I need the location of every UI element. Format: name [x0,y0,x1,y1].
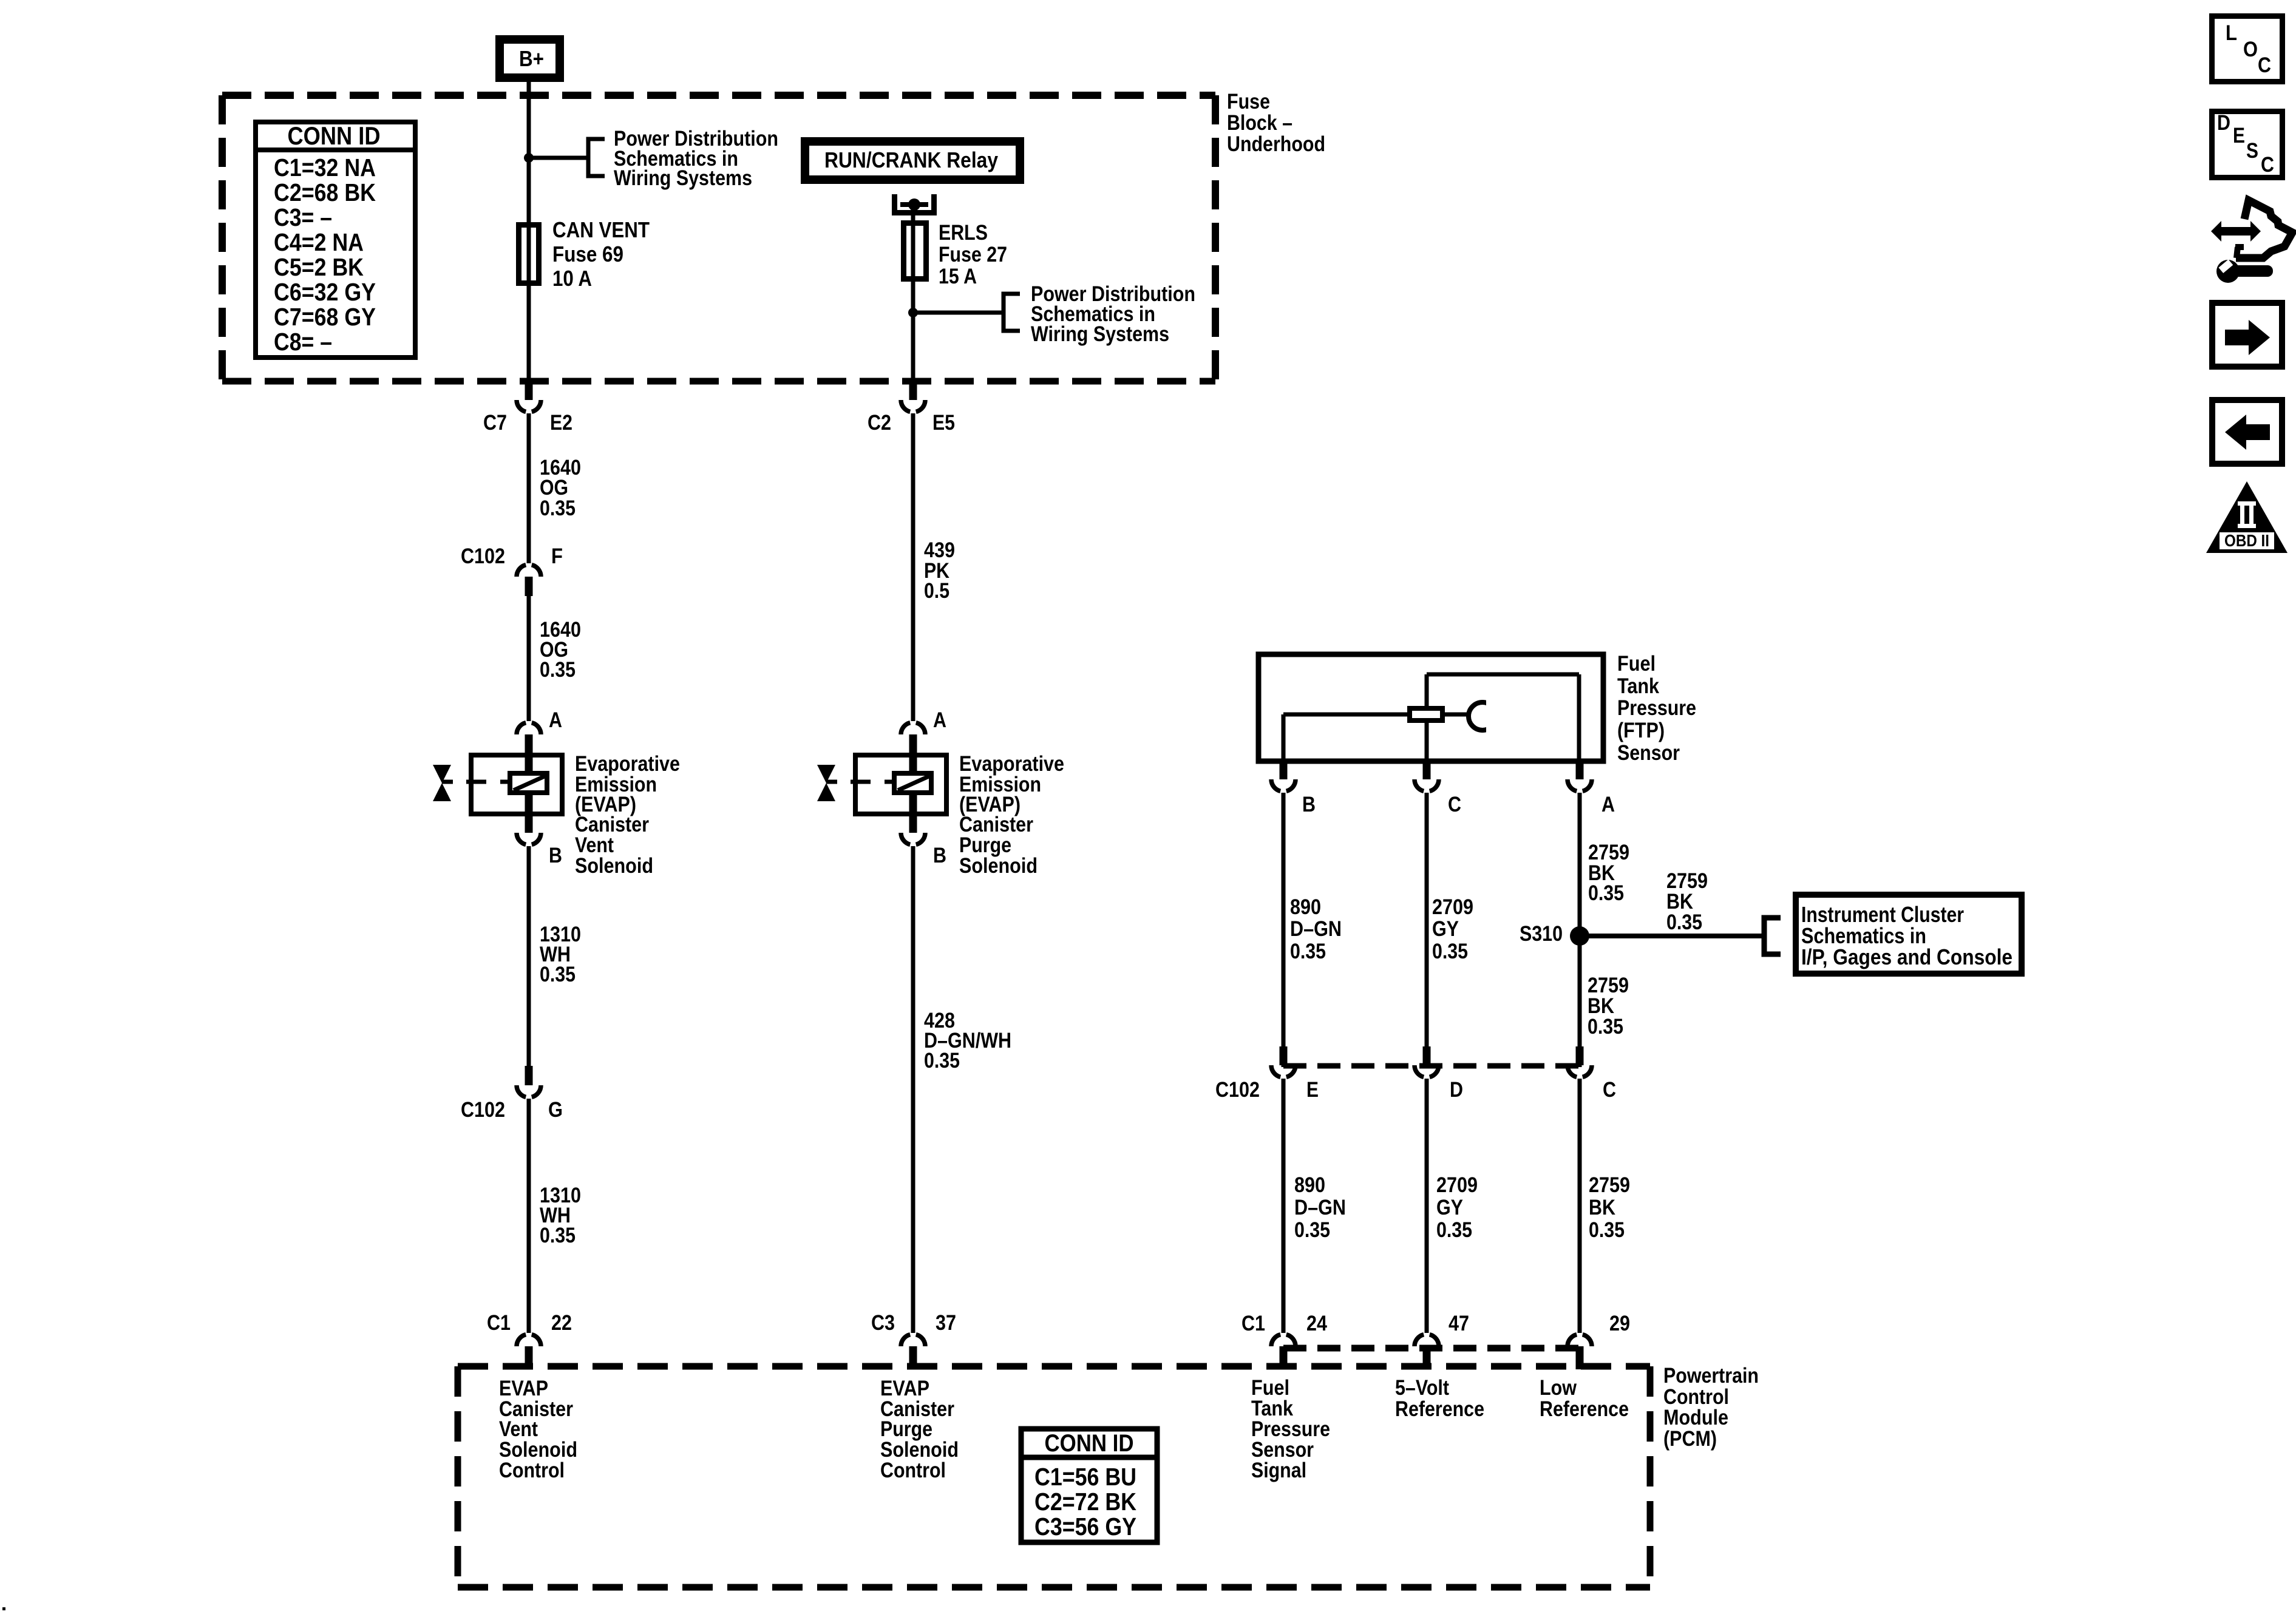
svg-text:C: C [2258,53,2271,77]
svg-text:Pressure: Pressure [1617,696,1696,720]
svg-text:Underhood: Underhood [1227,132,1325,156]
svg-text:D: D [1450,1078,1463,1102]
svg-text:0.35: 0.35 [540,963,576,986]
svg-text:A: A [933,708,946,732]
svg-text:Wiring Systems: Wiring Systems [614,166,752,190]
svg-text:CONN ID: CONN ID [288,121,381,150]
svg-text:890: 890 [1294,1173,1325,1197]
svg-text:D–GN: D–GN [1294,1196,1346,1219]
svg-text:C: C [1603,1078,1616,1102]
svg-text:0.35: 0.35 [540,497,576,520]
svg-text:E: E [2233,124,2245,147]
svg-text:A: A [549,708,562,732]
svg-text:CAN VENT: CAN VENT [552,217,650,242]
svg-text:C: C [1448,793,1461,816]
svg-text:B+: B+ [519,46,544,71]
svg-text:Low: Low [1540,1376,1577,1400]
svg-text:Fuel: Fuel [1617,652,1656,676]
svg-text:E5: E5 [932,411,955,435]
svg-text:D: D [2217,111,2230,135]
svg-text:C2: C2 [868,411,891,435]
svg-text:B: B [549,844,562,867]
svg-text:C8= –: C8= – [274,328,332,356]
svg-text:E2: E2 [550,411,572,435]
svg-text:0.35: 0.35 [1294,1218,1330,1242]
svg-text:Fuse 27: Fuse 27 [939,243,1007,266]
svg-text:29: 29 [1609,1312,1630,1335]
svg-text:CONN ID: CONN ID [1045,1430,1134,1457]
svg-text:2759: 2759 [1589,1173,1630,1197]
svg-text:0.35: 0.35 [1290,940,1326,963]
svg-text:0.35: 0.35 [1666,910,1702,934]
svg-text:C3=56 GY: C3=56 GY [1034,1513,1136,1541]
svg-text:C3= –: C3= – [274,203,332,231]
svg-text:C1: C1 [1241,1312,1265,1335]
svg-text:Control: Control [880,1459,946,1482]
svg-text:S: S [2246,139,2258,163]
svg-text:BK: BK [1589,1196,1615,1219]
svg-text:B: B [1302,793,1316,816]
svg-text:0.35: 0.35 [1432,940,1468,963]
svg-text:15 A: 15 A [939,265,977,288]
svg-text:Tank: Tank [1617,674,1659,698]
svg-text:ERLS: ERLS [939,221,988,245]
svg-text:0.35: 0.35 [1589,1218,1625,1242]
svg-text:Reference: Reference [1395,1397,1484,1421]
svg-text:B: B [933,844,946,867]
svg-text:Solenoid: Solenoid [959,854,1038,878]
svg-text:5–Volt: 5–Volt [1395,1376,1449,1400]
svg-text:C7: C7 [483,411,507,435]
svg-text:0.35: 0.35 [540,658,576,682]
svg-text:Fuse 69: Fuse 69 [552,242,623,266]
svg-text:Block –: Block – [1227,111,1292,135]
svg-text:C6=32 GY: C6=32 GY [274,278,376,306]
svg-text:0.35: 0.35 [540,1224,576,1247]
svg-text:C102: C102 [1215,1078,1260,1102]
svg-text:22: 22 [551,1311,572,1335]
svg-text:24: 24 [1306,1312,1327,1335]
svg-text:C102: C102 [461,1098,505,1122]
svg-text:(FTP): (FTP) [1617,719,1665,742]
svg-text:0.5: 0.5 [924,579,949,603]
svg-text:Signal: Signal [1251,1459,1306,1482]
svg-text:C4=2 NA: C4=2 NA [274,228,364,256]
svg-text:C102: C102 [461,544,505,568]
svg-text:Solenoid: Solenoid [575,854,653,878]
svg-text:GY: GY [1436,1196,1463,1219]
svg-text:Powertrain: Powertrain [1663,1364,1759,1388]
svg-text:C2=68 BK: C2=68 BK [274,178,376,206]
svg-text:0.35: 0.35 [1436,1218,1472,1242]
svg-text:C: C [2261,153,2274,177]
svg-text:L: L [2226,21,2237,45]
svg-text:F: F [551,544,563,568]
svg-text:37: 37 [936,1311,956,1335]
svg-text:0.35: 0.35 [924,1049,960,1073]
svg-text:S310: S310 [1520,922,1563,946]
svg-text:A: A [1601,793,1615,816]
svg-text:Wiring Systems: Wiring Systems [1031,322,1169,346]
svg-text:(PCM): (PCM) [1663,1427,1717,1451]
svg-text:Sensor: Sensor [1617,741,1680,765]
svg-text:2709: 2709 [1436,1173,1478,1197]
svg-text:C7=68 GY: C7=68 GY [274,303,376,331]
svg-text:2709: 2709 [1432,895,1473,919]
svg-text:O: O [2243,38,2258,61]
svg-text:OBD II: OBD II [2224,531,2269,550]
svg-text:C3: C3 [871,1311,895,1335]
svg-text:0.35: 0.35 [1588,881,1624,905]
svg-text:Control: Control [499,1459,565,1482]
svg-text:G: G [548,1098,563,1122]
svg-text:Fuse: Fuse [1227,90,1270,114]
svg-text:I/P, Gages and Console: I/P, Gages and Console [1801,944,2012,969]
svg-text:890: 890 [1290,895,1321,919]
svg-text:C1=32 NA: C1=32 NA [274,154,376,181]
svg-text:C2=72 BK: C2=72 BK [1034,1488,1136,1516]
svg-text:Module: Module [1663,1406,1728,1429]
svg-text:GY: GY [1432,917,1459,941]
svg-text:47: 47 [1449,1312,1469,1335]
svg-text:C1: C1 [487,1311,511,1335]
svg-text:0.35: 0.35 [1588,1015,1623,1039]
svg-text:Reference: Reference [1540,1397,1629,1421]
svg-text:C5=2 BK: C5=2 BK [274,253,364,281]
svg-text:E: E [1306,1078,1319,1102]
svg-text:C1=56 BU: C1=56 BU [1034,1463,1136,1491]
svg-text:10 A: 10 A [552,266,592,291]
svg-text:RUN/CRANK Relay: RUN/CRANK Relay [824,147,998,172]
svg-text:D–GN: D–GN [1290,917,1342,941]
